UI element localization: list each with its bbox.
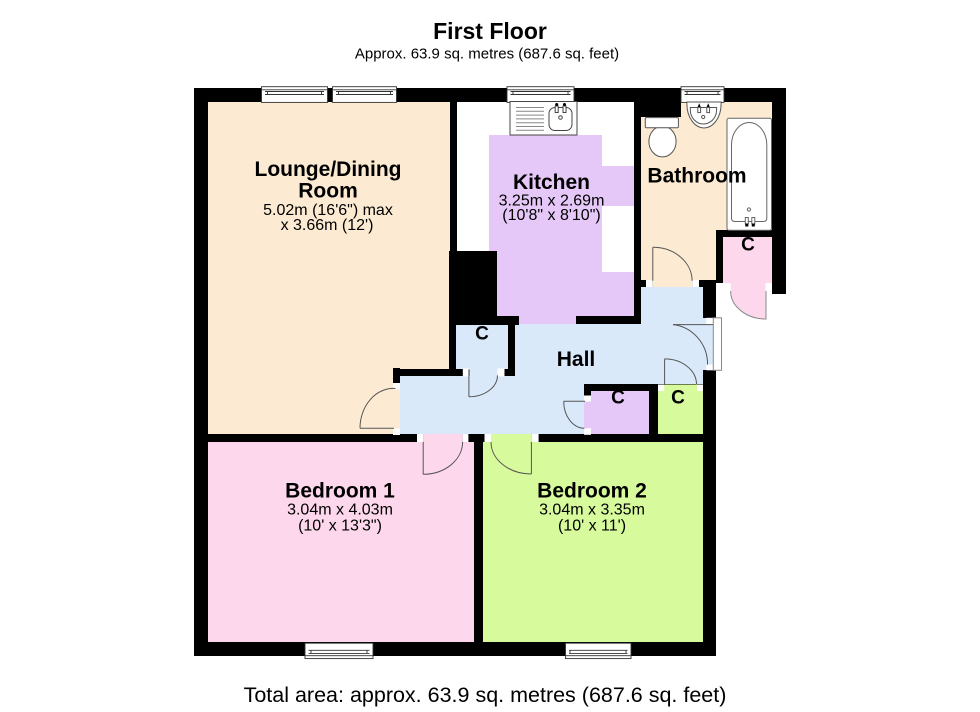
svg-text:3.04m x 3.35m: 3.04m x 3.35m xyxy=(539,502,645,519)
svg-text:(10' x 13'3"): (10' x 13'3") xyxy=(298,518,382,535)
svg-text:(10' x 11'): (10' x 11') xyxy=(558,518,626,535)
svg-text:C: C xyxy=(741,235,755,256)
svg-text:Kitchen: Kitchen xyxy=(513,171,590,194)
svg-text:Approx. 63.9 sq. metres (687.6: Approx. 63.9 sq. metres (687.6 sq. feet) xyxy=(355,46,619,63)
svg-text:C: C xyxy=(475,324,489,345)
svg-text:C: C xyxy=(611,388,625,409)
svg-text:(10'8" x 8'10"): (10'8" x 8'10") xyxy=(502,207,600,224)
svg-text:Bedroom 2: Bedroom 2 xyxy=(537,480,647,503)
svg-text:Hall: Hall xyxy=(557,348,596,371)
svg-text:x 3.66m (12'): x 3.66m (12') xyxy=(281,217,374,234)
svg-text:Room: Room xyxy=(298,180,358,203)
svg-text:C: C xyxy=(671,388,685,409)
svg-text:Bedroom 1: Bedroom 1 xyxy=(285,480,395,503)
svg-text:3.04m x 4.03m: 3.04m x 4.03m xyxy=(287,502,393,519)
svg-text:Total area: approx. 63.9 sq. m: Total area: approx. 63.9 sq. metres (687… xyxy=(244,683,727,707)
svg-text:Bathroom: Bathroom xyxy=(647,165,746,188)
svg-text:First Floor: First Floor xyxy=(433,18,547,44)
svg-text:Lounge/Dining: Lounge/Dining xyxy=(255,158,402,181)
